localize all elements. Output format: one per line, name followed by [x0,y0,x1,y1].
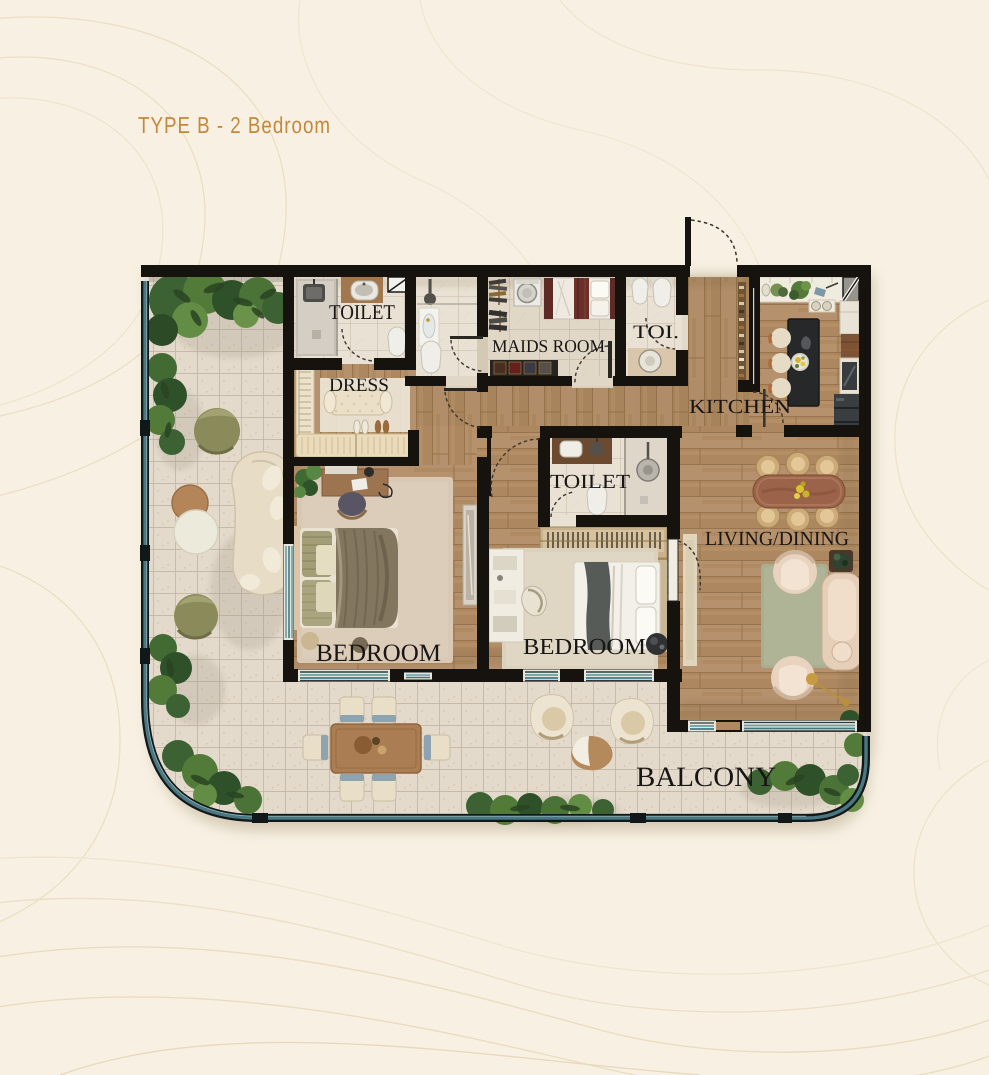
svg-text:TOILET: TOILET [550,471,630,493]
svg-text:BEDROOM: BEDROOM [523,634,646,659]
svg-text:TOILET: TOILET [329,300,395,324]
svg-text:LIVING/DINING: LIVING/DINING [705,528,849,550]
svg-text:MAIDS ROOM: MAIDS ROOM [492,336,605,356]
svg-text:TOI.: TOI. [633,322,679,343]
svg-text:KITCHEN: KITCHEN [689,396,791,418]
svg-text:DRESS: DRESS [329,375,389,396]
svg-text:TYPE B - 2 Bedroom: TYPE B - 2 Bedroom [138,112,331,138]
svg-text:BEDROOM: BEDROOM [316,640,441,667]
svg-text:BALCONY: BALCONY [636,762,776,793]
